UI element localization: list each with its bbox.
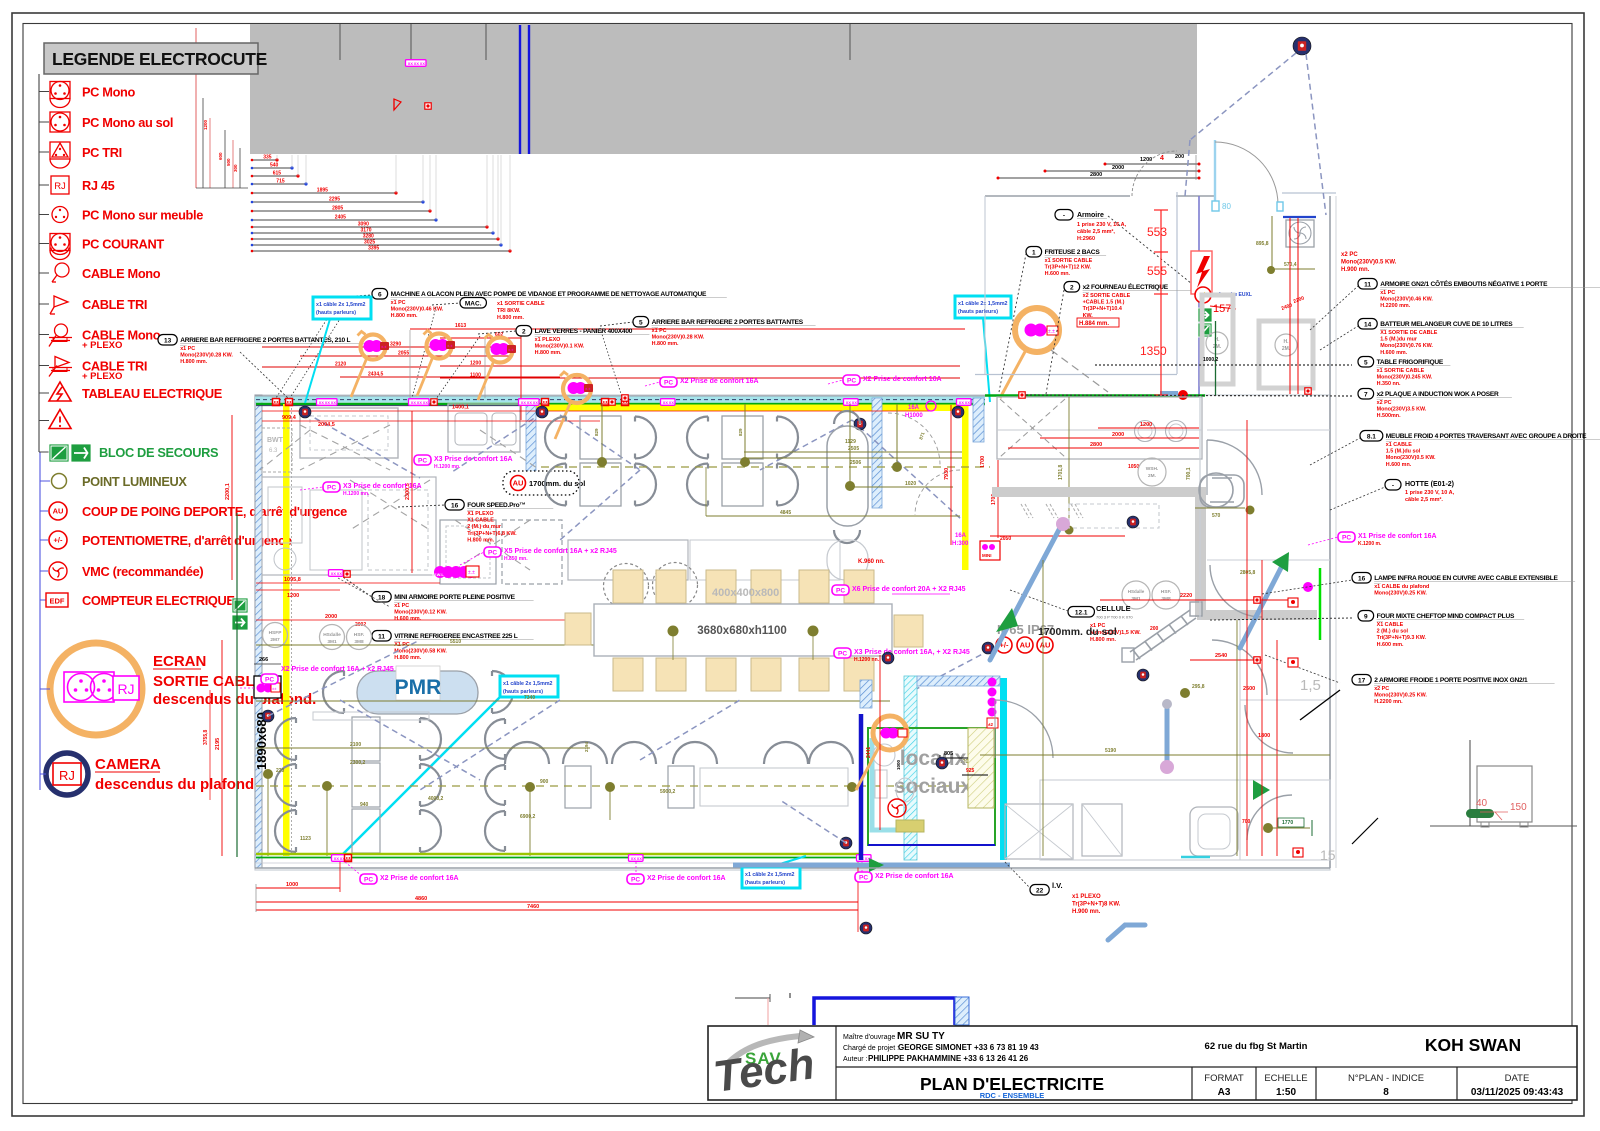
- svg-text:8: 8: [1383, 1087, 1389, 1098]
- svg-text:1095,8: 1095,8: [284, 577, 301, 583]
- svg-text:1700mm. du sol: 1700mm. du sol: [1038, 626, 1117, 638]
- svg-text:RJ: RJ: [117, 681, 134, 697]
- svg-text:1200: 1200: [470, 361, 481, 367]
- svg-text:BLOC DE SECOURS: BLOC DE SECOURS: [99, 445, 219, 460]
- svg-text:X2 Prise de confort 16A: X2 Prise de confort 16A: [647, 875, 726, 882]
- svg-text:5: 5: [639, 320, 643, 327]
- svg-text:3395: 3395: [368, 246, 379, 252]
- svg-text:7460: 7460: [527, 904, 539, 910]
- svg-text:1100: 1100: [470, 373, 481, 379]
- svg-text:XX: XX: [408, 62, 414, 66]
- svg-text:22: 22: [1036, 888, 1044, 895]
- svg-text:A3: A3: [1218, 1087, 1231, 1098]
- svg-text:+ PLEXO: + PLEXO: [82, 340, 122, 351]
- svg-text:Mono(230V)0.1 KW.: Mono(230V)0.1 KW.: [535, 344, 585, 350]
- svg-text:x2 FOURNEAU ÉLECTRIQUE: x2 FOURNEAU ÉLECTRIQUE: [1083, 282, 1169, 291]
- svg-text:x1 PC: x1 PC: [1380, 290, 1395, 296]
- svg-text:H:2960: H:2960: [1077, 236, 1095, 242]
- svg-text:XX: XX: [533, 401, 539, 405]
- svg-text:Armoire: Armoire: [1077, 212, 1104, 219]
- svg-text:PC: PC: [1342, 535, 1351, 542]
- svg-text:AU: AU: [1020, 641, 1031, 650]
- svg-text:descendus du plafond.: descendus du plafond.: [95, 776, 258, 793]
- svg-text:2500: 2500: [1243, 686, 1255, 692]
- svg-text:2M.: 2M.: [1148, 473, 1156, 479]
- svg-text:XX: XX: [631, 857, 637, 861]
- svg-text:l.V.: l.V.: [1052, 881, 1063, 890]
- svg-text:2805,8: 2805,8: [1240, 570, 1256, 576]
- svg-text:x1 câble 2x 1,5mm2: x1 câble 2x 1,5mm2: [503, 681, 553, 687]
- svg-text:MR SU TY: MR SU TY: [897, 1031, 945, 1042]
- svg-text:PC: PC: [859, 875, 868, 882]
- svg-text:PC COURANT: PC COURANT: [82, 237, 164, 252]
- svg-text:LAMPE INFRA ROUGE EN CUIVRE AV: LAMPE INFRA ROUGE EN CUIVRE AVEC CABLE E…: [1374, 575, 1558, 582]
- svg-text:2434,5: 2434,5: [368, 372, 384, 378]
- svg-text:5900,2: 5900,2: [660, 789, 676, 795]
- svg-text:X1 SORTIE DE CABLE: X1 SORTIE DE CABLE: [1380, 330, 1438, 336]
- svg-text:540: 540: [270, 163, 279, 169]
- svg-text:555: 555: [1147, 264, 1167, 278]
- svg-text:2050: 2050: [1000, 536, 1011, 542]
- svg-text:EDF: EDF: [50, 597, 65, 606]
- svg-text:1: 1: [1032, 250, 1036, 257]
- svg-text:MEUBLE FROID 4 PORTES TRAVERSA: MEUBLE FROID 4 PORTES TRAVERSANT AVEC GR…: [1386, 433, 1587, 440]
- svg-text:7340: 7340: [524, 695, 535, 701]
- svg-text:2506: 2506: [850, 460, 861, 466]
- svg-text:FORMAT: FORMAT: [1204, 1073, 1244, 1084]
- svg-text:TABLEAU ELECTRIQUE: TABLEAU ELECTRIQUE: [82, 386, 223, 401]
- svg-text:1000,2: 1000,2: [1203, 357, 1219, 363]
- svg-text:200: 200: [1150, 626, 1159, 632]
- svg-text:MAC.: MAC.: [465, 301, 482, 308]
- svg-text:4: 4: [1160, 155, 1164, 162]
- svg-text:FOUR SPEED.Pro™: FOUR SPEED.Pro™: [467, 502, 526, 509]
- svg-text:AU: AU: [1040, 641, 1051, 650]
- svg-text:18: 18: [378, 595, 386, 602]
- svg-text:ARRIERE BAR REFRIGERE 2 PORTES: ARRIERE BAR REFRIGERE 2 PORTES BATTANTES: [652, 319, 804, 326]
- svg-text:1800: 1800: [1258, 733, 1270, 739]
- svg-text:-: -: [1392, 483, 1394, 490]
- svg-text:±.±: ±.±: [585, 386, 591, 391]
- svg-text:150: 150: [1510, 802, 1527, 813]
- svg-text:Auteur :: Auteur :: [843, 1056, 868, 1063]
- svg-text:H.1200 nn.: H.1200 nn.: [854, 657, 880, 663]
- svg-text:AU: AU: [53, 507, 64, 516]
- svg-text:Chargé de projet :: Chargé de projet :: [843, 1045, 899, 1052]
- svg-text:x1 PC: x1 PC: [391, 300, 406, 306]
- svg-text:±.±: ±.±: [381, 344, 387, 349]
- svg-text:16A: 16A: [955, 533, 967, 539]
- svg-text:TRI 8KW.: TRI 8KW.: [497, 308, 521, 314]
- svg-text:700,1: 700,1: [1186, 467, 1192, 480]
- svg-text:553: 553: [1147, 225, 1167, 239]
- svg-text:2120: 2120: [335, 362, 346, 368]
- svg-text:PHILIPPE PAKHAMMINE +33 6 13: PHILIPPE PAKHAMMINE +33 6 13 26 41 26: [868, 1054, 1029, 1063]
- svg-text:220: 220: [276, 768, 285, 774]
- svg-text:CABLE TRI: CABLE TRI: [82, 297, 147, 312]
- svg-text:H:300: H:300: [952, 541, 969, 547]
- svg-text:PMR: PMR: [395, 676, 442, 699]
- svg-text:Mono(230V)0.28 KW.: Mono(230V)0.28 KW.: [180, 353, 233, 359]
- svg-text:XX: XX: [411, 401, 417, 405]
- svg-text:H.800 mm.: H.800 mm.: [497, 315, 524, 321]
- svg-text:2000: 2000: [325, 614, 337, 620]
- svg-text:H.: H.: [1284, 339, 1290, 345]
- svg-text:400x400x800: 400x400x800: [712, 587, 779, 599]
- svg-text:H.350 nn.: H.350 nn.: [1377, 381, 1401, 387]
- svg-text:17: 17: [1358, 678, 1366, 685]
- svg-text:x2 PLAQUE A INDUCTION WOK A PO: x2 PLAQUE A INDUCTION WOK A POSER: [1377, 391, 1499, 398]
- svg-text:Mono(230V)0.76 KW.: Mono(230V)0.76 KW.: [1380, 343, 1433, 349]
- svg-text:Tr(3P+N+T)8 KW.: Tr(3P+N+T)8 KW.: [1072, 902, 1121, 908]
- svg-text:x1 PC: x1 PC: [394, 603, 409, 609]
- svg-text:H.800 mm.: H.800 mm.: [467, 537, 494, 543]
- svg-text:295,8: 295,8: [1192, 684, 1205, 690]
- svg-text:Mono(230V)0.28 KW.: Mono(230V)0.28 KW.: [652, 335, 705, 341]
- svg-text:x1 SORTIE CABLE: x1 SORTIE CABLE: [1377, 368, 1425, 374]
- svg-text:HSdalle: HSdalle: [323, 632, 341, 638]
- svg-text:62 rue du fbg St Martin: 62 rue du fbg St Martin: [1205, 1041, 1308, 1052]
- svg-text:2M.: 2M.: [1282, 346, 1291, 352]
- svg-text:600: 600: [218, 152, 223, 160]
- svg-text:x1 CABLE: x1 CABLE: [1386, 442, 1412, 448]
- svg-text:XX: XX: [331, 401, 337, 405]
- svg-text:40: 40: [1476, 798, 1488, 809]
- svg-text:±.±: ±.±: [468, 570, 475, 576]
- svg-text:Mono(230V)0.5 KW.: Mono(230V)0.5 KW.: [1341, 260, 1397, 266]
- svg-text:(hauts parleurs): (hauts parleurs): [958, 309, 998, 315]
- svg-text:x1 PLEXO: x1 PLEXO: [1072, 894, 1101, 900]
- svg-text:H.600 mm.: H.600 mm.: [1380, 350, 1407, 356]
- svg-text:H.800 mm.: H.800 mm.: [652, 341, 679, 347]
- svg-text:13: 13: [164, 338, 172, 345]
- svg-text:1050: 1050: [1128, 464, 1139, 470]
- svg-text:Maître d'ouvrage :: Maître d'ouvrage :: [843, 1034, 899, 1041]
- svg-text:XX: XX: [325, 401, 331, 405]
- svg-text:2 ARMOIRE FROIDE 1 PORTE POSIT: 2 ARMOIRE FROIDE 1 PORTE POSITIVE INOX G…: [1374, 677, 1528, 684]
- svg-text:03/11/2025 09:43:43: 03/11/2025 09:43:43: [1471, 1087, 1564, 1098]
- svg-text:829: 829: [594, 428, 599, 436]
- svg-text:940: 940: [360, 802, 369, 808]
- svg-text:HSF.: HSF.: [354, 632, 364, 638]
- svg-text:H1000: H1000: [905, 413, 923, 419]
- svg-text:±2: ±2: [988, 722, 993, 727]
- svg-text:2441: 2441: [866, 747, 872, 758]
- svg-text:6: 6: [378, 292, 382, 299]
- svg-text:XX: XX: [420, 62, 426, 66]
- svg-text:1700mm. du sol: 1700mm. du sol: [529, 479, 585, 488]
- svg-text:805: 805: [944, 751, 953, 757]
- svg-text:PC: PC: [631, 877, 640, 884]
- svg-text:1129: 1129: [845, 439, 856, 445]
- svg-text:PC: PC: [847, 378, 856, 385]
- svg-text:80: 80: [1222, 202, 1231, 211]
- svg-text:1701,8: 1701,8: [1058, 464, 1064, 480]
- svg-text:7: 7: [1364, 392, 1368, 399]
- svg-text:H.884 mm.: H.884 mm.: [1079, 321, 1109, 327]
- svg-text:HOTTE (E01-2): HOTTE (E01-2): [1405, 481, 1454, 488]
- svg-text:PC Mono au sol: PC Mono au sol: [82, 115, 173, 130]
- svg-text:MINI ARMOIRE PORTE PLEINE POSI: MINI ARMOIRE PORTE PLEINE POSITIVE: [394, 594, 515, 601]
- svg-text:LAVE VERRES - PANIER 400X400: LAVE VERRES - PANIER 400X400: [535, 328, 633, 335]
- svg-text:H.850 mn.: H.850 mn.: [504, 556, 528, 562]
- svg-text:900: 900: [540, 779, 549, 785]
- svg-text:XX: XX: [669, 401, 675, 405]
- svg-text:X2 Prise de confort 16A: X2 Prise de confort 16A: [680, 378, 759, 385]
- svg-text:locaux: locaux: [900, 747, 967, 770]
- svg-text:12.1: 12.1: [1075, 610, 1088, 617]
- svg-text:2: 2: [1070, 285, 1074, 292]
- svg-text:x1 PC: x1 PC: [652, 328, 667, 334]
- svg-text:LEGENDE ELECTROCUTE: LEGENDE ELECTROCUTE: [52, 49, 267, 69]
- svg-text:200: 200: [1175, 154, 1184, 160]
- svg-text:PC Mono: PC Mono: [82, 85, 136, 100]
- svg-text:VMC (recommandée): VMC (recommandée): [82, 564, 203, 579]
- svg-text:2805: 2805: [332, 206, 343, 212]
- svg-text:Mono(230V)0.5 KW.: Mono(230V)0.5 KW.: [1386, 455, 1436, 461]
- svg-text:PC TRI: PC TRI: [82, 145, 122, 160]
- svg-text:3M8: 3M8: [1161, 596, 1171, 602]
- svg-text:3M8: 3M8: [354, 639, 364, 645]
- svg-text:WSH.: WSH.: [1146, 466, 1159, 472]
- svg-text:+CABLE 1.5 (M.): +CABLE 1.5 (M.): [1083, 300, 1125, 306]
- svg-text:(hauts parleurs): (hauts parleurs): [745, 880, 785, 886]
- svg-text:2800: 2800: [1090, 442, 1102, 448]
- svg-text:COMPTEUR ELECTRIQUE: COMPTEUR ELECTRIQUE: [82, 593, 235, 608]
- svg-text:RDC - ENSEMBLE: RDC - ENSEMBLE: [980, 1091, 1045, 1100]
- svg-text:PC: PC: [836, 588, 845, 595]
- svg-text:HSFP: HSFP: [269, 630, 283, 636]
- svg-text:PC: PC: [364, 877, 373, 884]
- svg-text:1.5 (M.)du mur: 1.5 (M.)du mur: [1380, 337, 1418, 343]
- svg-text:H.600 mm.: H.600 mm.: [394, 616, 421, 622]
- svg-text:15: 15: [1320, 847, 1336, 863]
- svg-text:1.5 (M.)du sol: 1.5 (M.)du sol: [1386, 449, 1421, 455]
- svg-text:X1 CABLE: X1 CABLE: [1377, 622, 1404, 628]
- svg-text:7930: 7930: [944, 468, 950, 480]
- svg-text:Tri(3P+N+T)9.3 KW.: Tri(3P+N+T)9.3 KW.: [1377, 635, 1427, 641]
- svg-text:700 3 P T00 0 K 070: 700 3 P T00 0 K 070: [1096, 615, 1133, 620]
- svg-text:16A: 16A: [908, 405, 920, 411]
- svg-text:H.1200 mn.: H.1200 mn.: [343, 491, 370, 497]
- svg-text:x2 PC: x2 PC: [1341, 252, 1358, 258]
- svg-text:H.600 mn.: H.600 mn.: [1045, 271, 1071, 277]
- svg-text:TABLE FRIGORIFIQUE: TABLE FRIGORIFIQUE: [1377, 359, 1444, 366]
- svg-text:HSdalle: HSdalle: [1128, 589, 1145, 594]
- svg-text:3290: 3290: [390, 342, 401, 348]
- svg-text:RJ: RJ: [59, 768, 75, 783]
- svg-text:XX: XX: [414, 62, 420, 66]
- svg-text:X5 Prise de confort 16A + x2 R: X5 Prise de confort 16A + x2 RJ45: [504, 548, 617, 555]
- svg-text:2200,1: 2200,1: [225, 483, 231, 500]
- svg-text:HSF.: HSF.: [1161, 589, 1171, 595]
- svg-text:Mono(230V)0.25 KW.: Mono(230V)0.25 KW.: [1374, 591, 1427, 597]
- svg-text:16: 16: [1358, 576, 1366, 583]
- svg-text:MINI: MINI: [982, 553, 992, 558]
- svg-text:2195: 2195: [215, 738, 221, 750]
- svg-text:Tr(3P+N+T)10.4: Tr(3P+N+T)10.4: [1083, 306, 1122, 312]
- svg-text:X6 Prise de confort 20A + X2 R: X6 Prise de confort 20A + X2 RJ45: [852, 586, 966, 593]
- svg-text:ECHELLE: ECHELLE: [1264, 1073, 1307, 1084]
- svg-text:Mono(230V)0.12 KW.: Mono(230V)0.12 KW.: [394, 610, 447, 616]
- svg-text:570: 570: [1212, 513, 1221, 519]
- svg-text:x1 SORTIE CABLE: x1 SORTIE CABLE: [1045, 258, 1093, 264]
- svg-text:Tr(3P+N+T)12 KW.: Tr(3P+N+T)12 KW.: [1045, 265, 1092, 271]
- svg-text:925: 925: [966, 768, 975, 774]
- svg-text:2295: 2295: [329, 197, 340, 203]
- svg-text:PC: PC: [265, 677, 274, 684]
- svg-text:2 (M.) du sol: 2 (M.) du sol: [1377, 629, 1409, 635]
- svg-text:DATE: DATE: [1505, 1073, 1530, 1084]
- svg-text:x1 SORTIE CABLE: x1 SORTIE CABLE: [497, 301, 545, 307]
- svg-text:+/-: +/-: [54, 536, 63, 545]
- svg-text:H.800 mm.: H.800 mm.: [394, 655, 421, 661]
- svg-text:715: 715: [276, 179, 285, 185]
- svg-text:500: 500: [226, 158, 231, 166]
- svg-text:H.2200 mn.: H.2200 mn.: [1374, 699, 1403, 705]
- svg-text:H.900 mn.: H.900 mn.: [1341, 267, 1370, 273]
- svg-text:H.900 mn.: H.900 mn.: [1072, 909, 1101, 915]
- svg-text:CABLE Mono: CABLE Mono: [82, 266, 161, 281]
- svg-text:câble 2,5 mm².: câble 2,5 mm².: [1405, 496, 1443, 503]
- svg-text:FRITEUSE 2 BACS: FRITEUSE 2 BACS: [1045, 249, 1101, 256]
- svg-text:CAMERA: CAMERA: [95, 756, 161, 773]
- svg-text:±.±: ±.±: [508, 347, 514, 352]
- svg-text:Mono(230V)0.46 KW.: Mono(230V)0.46 KW.: [1380, 297, 1433, 303]
- svg-text:2800: 2800: [1090, 172, 1102, 178]
- svg-text:X3 Prise de confort 16A, + X2: X3 Prise de confort 16A, + X2 RJ45: [854, 649, 970, 656]
- svg-text:5510: 5510: [450, 639, 461, 645]
- svg-text:X3 Prise de confort 16A: X3 Prise de confort 16A: [434, 456, 513, 463]
- svg-text:1020: 1020: [905, 481, 916, 487]
- svg-text:X1 PLEXO: X1 PLEXO: [467, 511, 493, 517]
- svg-text:XX: XX: [852, 401, 858, 405]
- svg-text:11: 11: [378, 634, 385, 641]
- svg-text:1350: 1350: [1140, 344, 1167, 358]
- svg-text:16: 16: [451, 503, 459, 510]
- svg-text:XX: XX: [527, 401, 533, 405]
- svg-text:H.600 mm.: H.600 mm.: [1377, 642, 1404, 648]
- svg-text:PC: PC: [327, 485, 336, 492]
- svg-text:2540: 2540: [1215, 653, 1227, 659]
- svg-text:1000: 1000: [286, 882, 298, 888]
- svg-text:1200: 1200: [287, 593, 299, 599]
- svg-text:2194: 2194: [584, 741, 589, 752]
- svg-text:9: 9: [1364, 614, 1368, 621]
- svg-text:909,4: 909,4: [282, 415, 297, 421]
- svg-text:300: 300: [233, 164, 238, 172]
- svg-text:2M7: 2M7: [270, 637, 280, 643]
- svg-text:2 (M.) du mur: 2 (M.) du mur: [467, 524, 502, 530]
- svg-text:Mono(230V)3.5 KW.: Mono(230V)3.5 KW.: [1377, 407, 1427, 413]
- svg-text:1,5: 1,5: [1300, 677, 1321, 694]
- svg-text:1200: 1200: [203, 119, 208, 130]
- svg-text:X2 Prise de confort 16A + x2 R: X2 Prise de confort 16A + x2 RJ45: [281, 666, 394, 673]
- svg-text:6900,2: 6900,2: [520, 814, 536, 820]
- svg-text:x2 PC: x2 PC: [1377, 400, 1392, 406]
- svg-text:3680x680xh1100: 3680x680xh1100: [697, 625, 787, 637]
- svg-text:1000: 1000: [896, 759, 901, 770]
- svg-text:1613: 1613: [455, 323, 466, 329]
- svg-text:2: 2: [522, 329, 526, 336]
- svg-text:H.1200 mn.: H.1200 mn.: [434, 464, 461, 470]
- svg-text:1123: 1123: [300, 836, 311, 842]
- svg-text:+ PLEXO: + PLEXO: [82, 371, 122, 382]
- svg-text:BATTEUR MELANGEUR CUVE DE 10 L: BATTEUR MELANGEUR CUVE DE 10 LITRES: [1380, 321, 1513, 328]
- svg-text:X3 Prise de confort 16A: X3 Prise de confort 16A: [343, 483, 422, 490]
- svg-text:XX: XX: [959, 401, 965, 405]
- svg-text:XX: XX: [337, 572, 343, 576]
- svg-text:x2 PC: x2 PC: [1374, 686, 1389, 692]
- svg-text:CELLULE: CELLULE: [1096, 604, 1131, 613]
- svg-text:XX: XX: [846, 401, 852, 405]
- svg-text:W.W.L: W.W.L: [432, 572, 444, 577]
- svg-text:K.960 nn.: K.960 nn.: [858, 559, 885, 565]
- svg-text:157: 157: [1213, 303, 1231, 315]
- svg-text:SORTIE CABLE: SORTIE CABLE: [153, 673, 265, 690]
- svg-text:FOUR MIXTE CHEFTOP MIND COMPAC: FOUR MIXTE CHEFTOP MIND COMPACT PLUS: [1377, 613, 1515, 620]
- svg-text:BWT: BWT: [267, 437, 284, 444]
- svg-text:XX: XX: [417, 401, 423, 405]
- svg-text:XX: XX: [319, 401, 325, 405]
- svg-text:3M1: 3M1: [327, 639, 337, 645]
- svg-text:H.500mn.: H.500mn.: [1377, 413, 1401, 419]
- svg-text:1700: 1700: [980, 456, 986, 468]
- svg-text:XX: XX: [334, 857, 340, 861]
- svg-text:2300,2: 2300,2: [350, 760, 366, 766]
- svg-text:N°PLAN - INDICE: N°PLAN - INDICE: [1348, 1073, 1424, 1084]
- svg-text:8.1: 8.1: [1367, 434, 1376, 441]
- svg-text:X1 Prise de confort 16A: X1 Prise de confort 16A: [1358, 533, 1437, 540]
- svg-text:PC: PC: [488, 550, 497, 557]
- svg-text:XX: XX: [423, 401, 429, 405]
- svg-text:AU: AU: [513, 479, 524, 488]
- svg-text:x1 PC: x1 PC: [180, 346, 195, 352]
- svg-text:335: 335: [263, 155, 272, 161]
- svg-text:829: 829: [738, 428, 743, 436]
- svg-text:3M1: 3M1: [1131, 596, 1141, 602]
- svg-text:266: 266: [259, 657, 268, 663]
- svg-text:H.2200 mm.: H.2200 mm.: [1380, 303, 1410, 309]
- svg-text:-: -: [1063, 213, 1065, 220]
- svg-text:x1 PLEXO: x1 PLEXO: [535, 337, 561, 343]
- svg-text:x1 câble 2x 1,5mm2: x1 câble 2x 1,5mm2: [745, 872, 795, 878]
- svg-text:700: 700: [1242, 819, 1251, 825]
- svg-text:x1 CALBE du plafond: x1 CALBE du plafond: [1374, 584, 1429, 590]
- svg-text:XX: XX: [637, 857, 643, 861]
- svg-text:2000: 2000: [1112, 165, 1124, 171]
- svg-text:K.1200 m.: K.1200 m.: [1358, 541, 1382, 547]
- svg-text:2405: 2405: [335, 215, 346, 221]
- svg-text:11: 11: [1364, 282, 1371, 289]
- svg-text:5190: 5190: [1105, 748, 1116, 754]
- svg-text:615: 615: [273, 171, 282, 177]
- svg-text:4845: 4845: [780, 510, 791, 516]
- svg-text:2004,5: 2004,5: [318, 422, 335, 428]
- svg-text:1200: 1200: [1140, 422, 1152, 428]
- svg-text:XX: XX: [663, 401, 669, 405]
- svg-text:6.3: 6.3: [269, 448, 278, 454]
- svg-text:COUP DE POING DEPORTE, d'arrêt: COUP DE POING DEPORTE, d'arrêt d'urgence: [82, 504, 347, 519]
- svg-text:1770: 1770: [1282, 820, 1293, 826]
- svg-text:±.±: ±.±: [447, 343, 453, 348]
- svg-text:ECRAN: ECRAN: [153, 653, 206, 670]
- svg-text:Mono(230V)0.25 KW.: Mono(230V)0.25 KW.: [1374, 693, 1427, 699]
- svg-text:1400,1: 1400,1: [452, 405, 469, 411]
- svg-text:GEORGE SIMONET +33 6 73 81 19: GEORGE SIMONET +33 6 73 81 19 43: [898, 1043, 1039, 1052]
- svg-text:2220: 2220: [1180, 593, 1192, 599]
- svg-text:XX: XX: [331, 572, 337, 576]
